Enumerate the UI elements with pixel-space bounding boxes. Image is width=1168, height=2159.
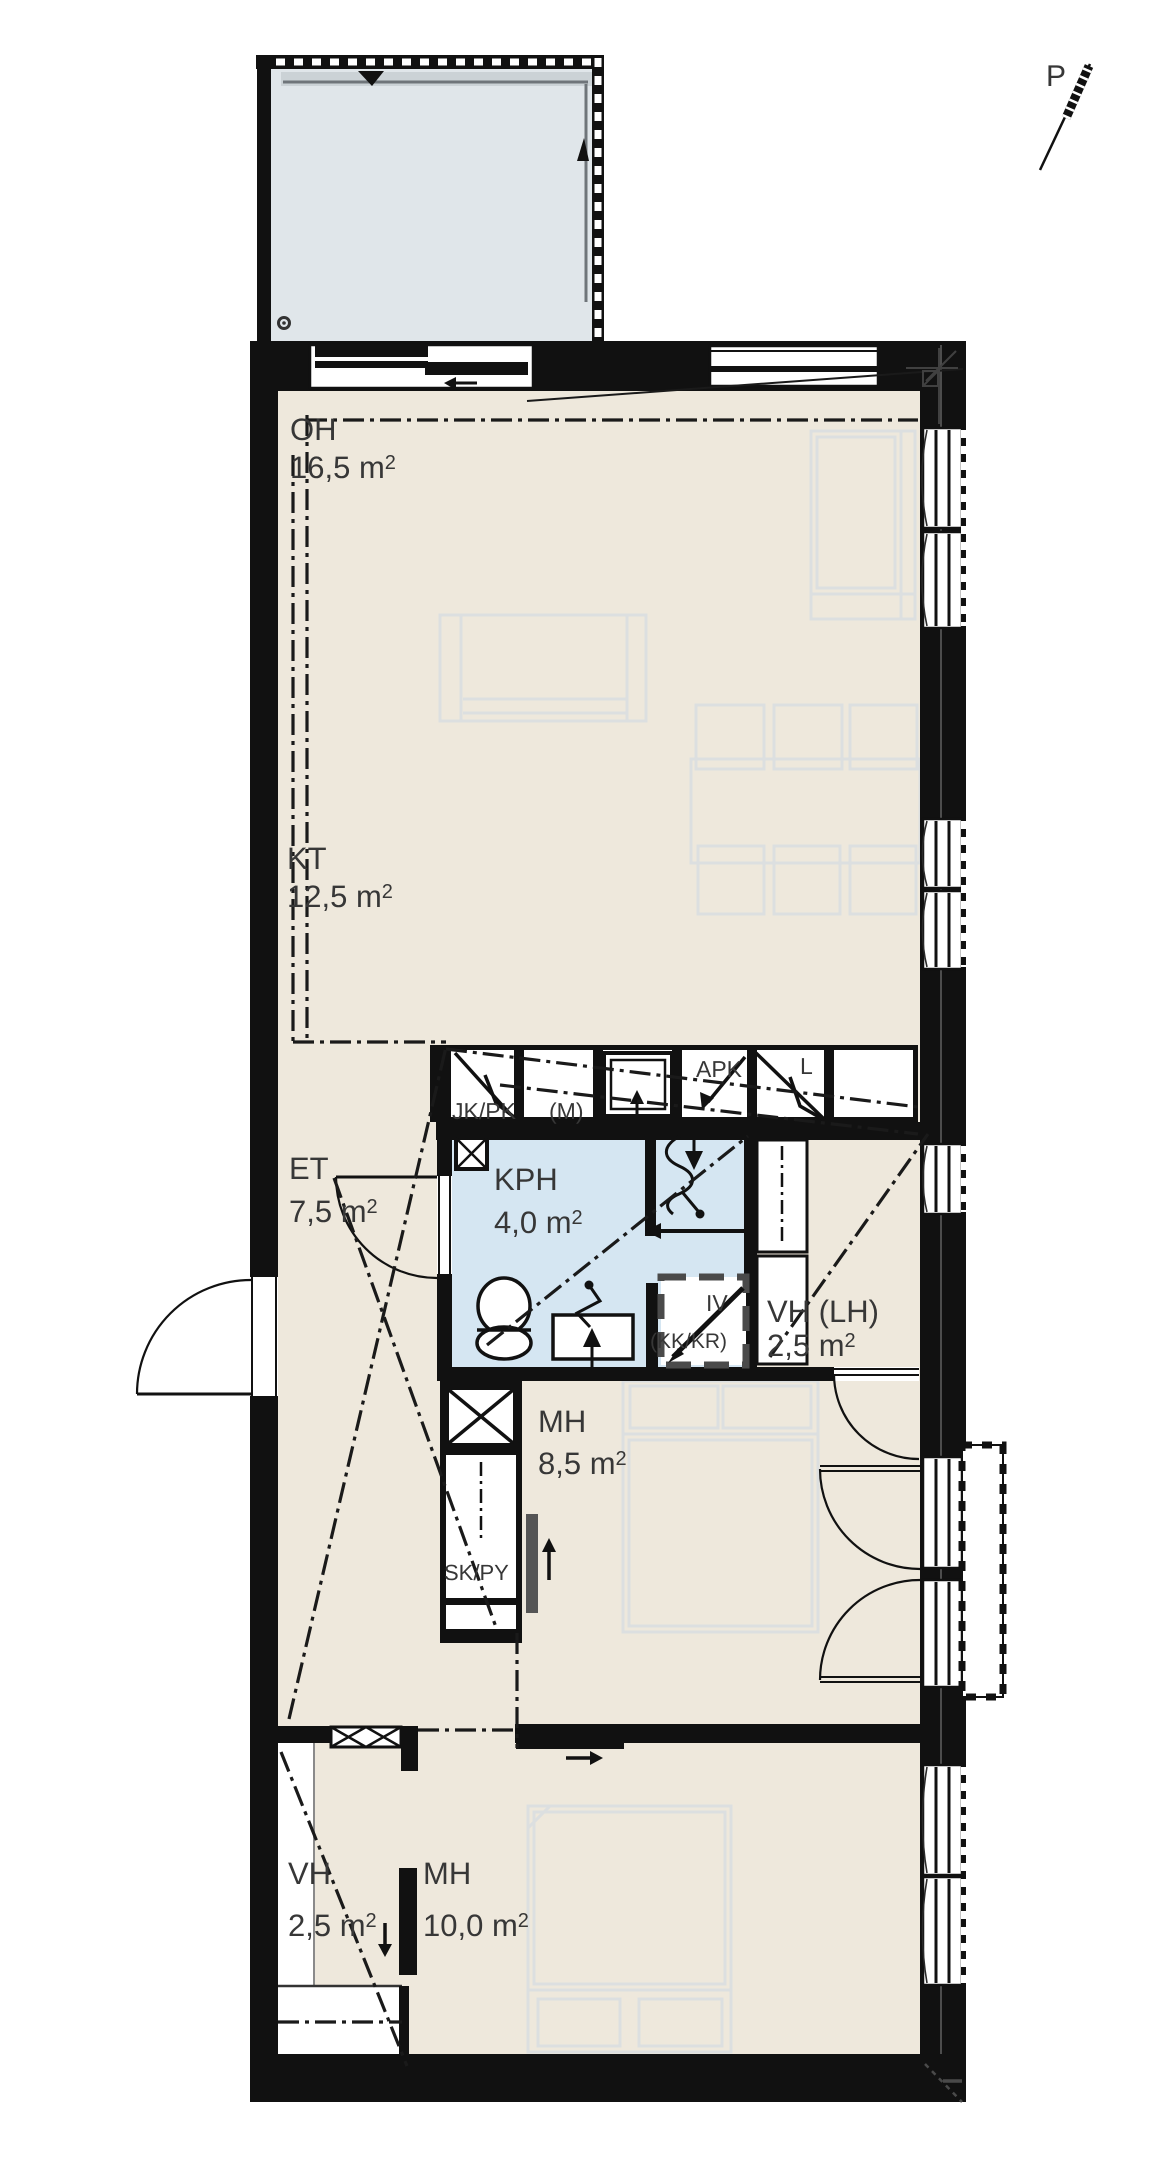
svg-text:KT: KT: [287, 841, 327, 876]
svg-text:2,5 m2: 2,5 m2: [288, 1908, 377, 1943]
svg-text:10,0 m2: 10,0 m2: [423, 1908, 529, 1943]
svg-text:L: L: [800, 1053, 813, 1079]
svg-text:(KK/KR): (KK/KR): [650, 1330, 727, 1353]
svg-text:KPH: KPH: [494, 1162, 558, 1197]
svg-text:APK: APK: [696, 1056, 743, 1082]
svg-text:VH: VH: [288, 1856, 331, 1891]
svg-text:IV: IV: [706, 1290, 728, 1316]
svg-text:OH: OH: [290, 412, 337, 447]
svg-text:12,5 m2: 12,5 m2: [287, 879, 393, 914]
svg-text:4,0 m2: 4,0 m2: [494, 1205, 583, 1240]
svg-text:MH: MH: [423, 1856, 471, 1891]
svg-text:16,5 m2: 16,5 m2: [290, 450, 396, 485]
svg-text:SK/PY: SK/PY: [444, 1560, 509, 1585]
svg-text:8,5 m2: 8,5 m2: [538, 1446, 627, 1481]
svg-text:JK/PK: JK/PK: [452, 1098, 517, 1124]
svg-text:7,5 m2: 7,5 m2: [289, 1194, 378, 1229]
svg-text:VH (LH): VH (LH): [767, 1294, 879, 1329]
svg-text:ET: ET: [289, 1151, 329, 1186]
svg-text:(M): (M): [549, 1098, 583, 1124]
svg-text:2,5 m2: 2,5 m2: [767, 1328, 856, 1363]
svg-text:MH: MH: [538, 1404, 586, 1439]
svg-text:P: P: [1046, 60, 1066, 93]
